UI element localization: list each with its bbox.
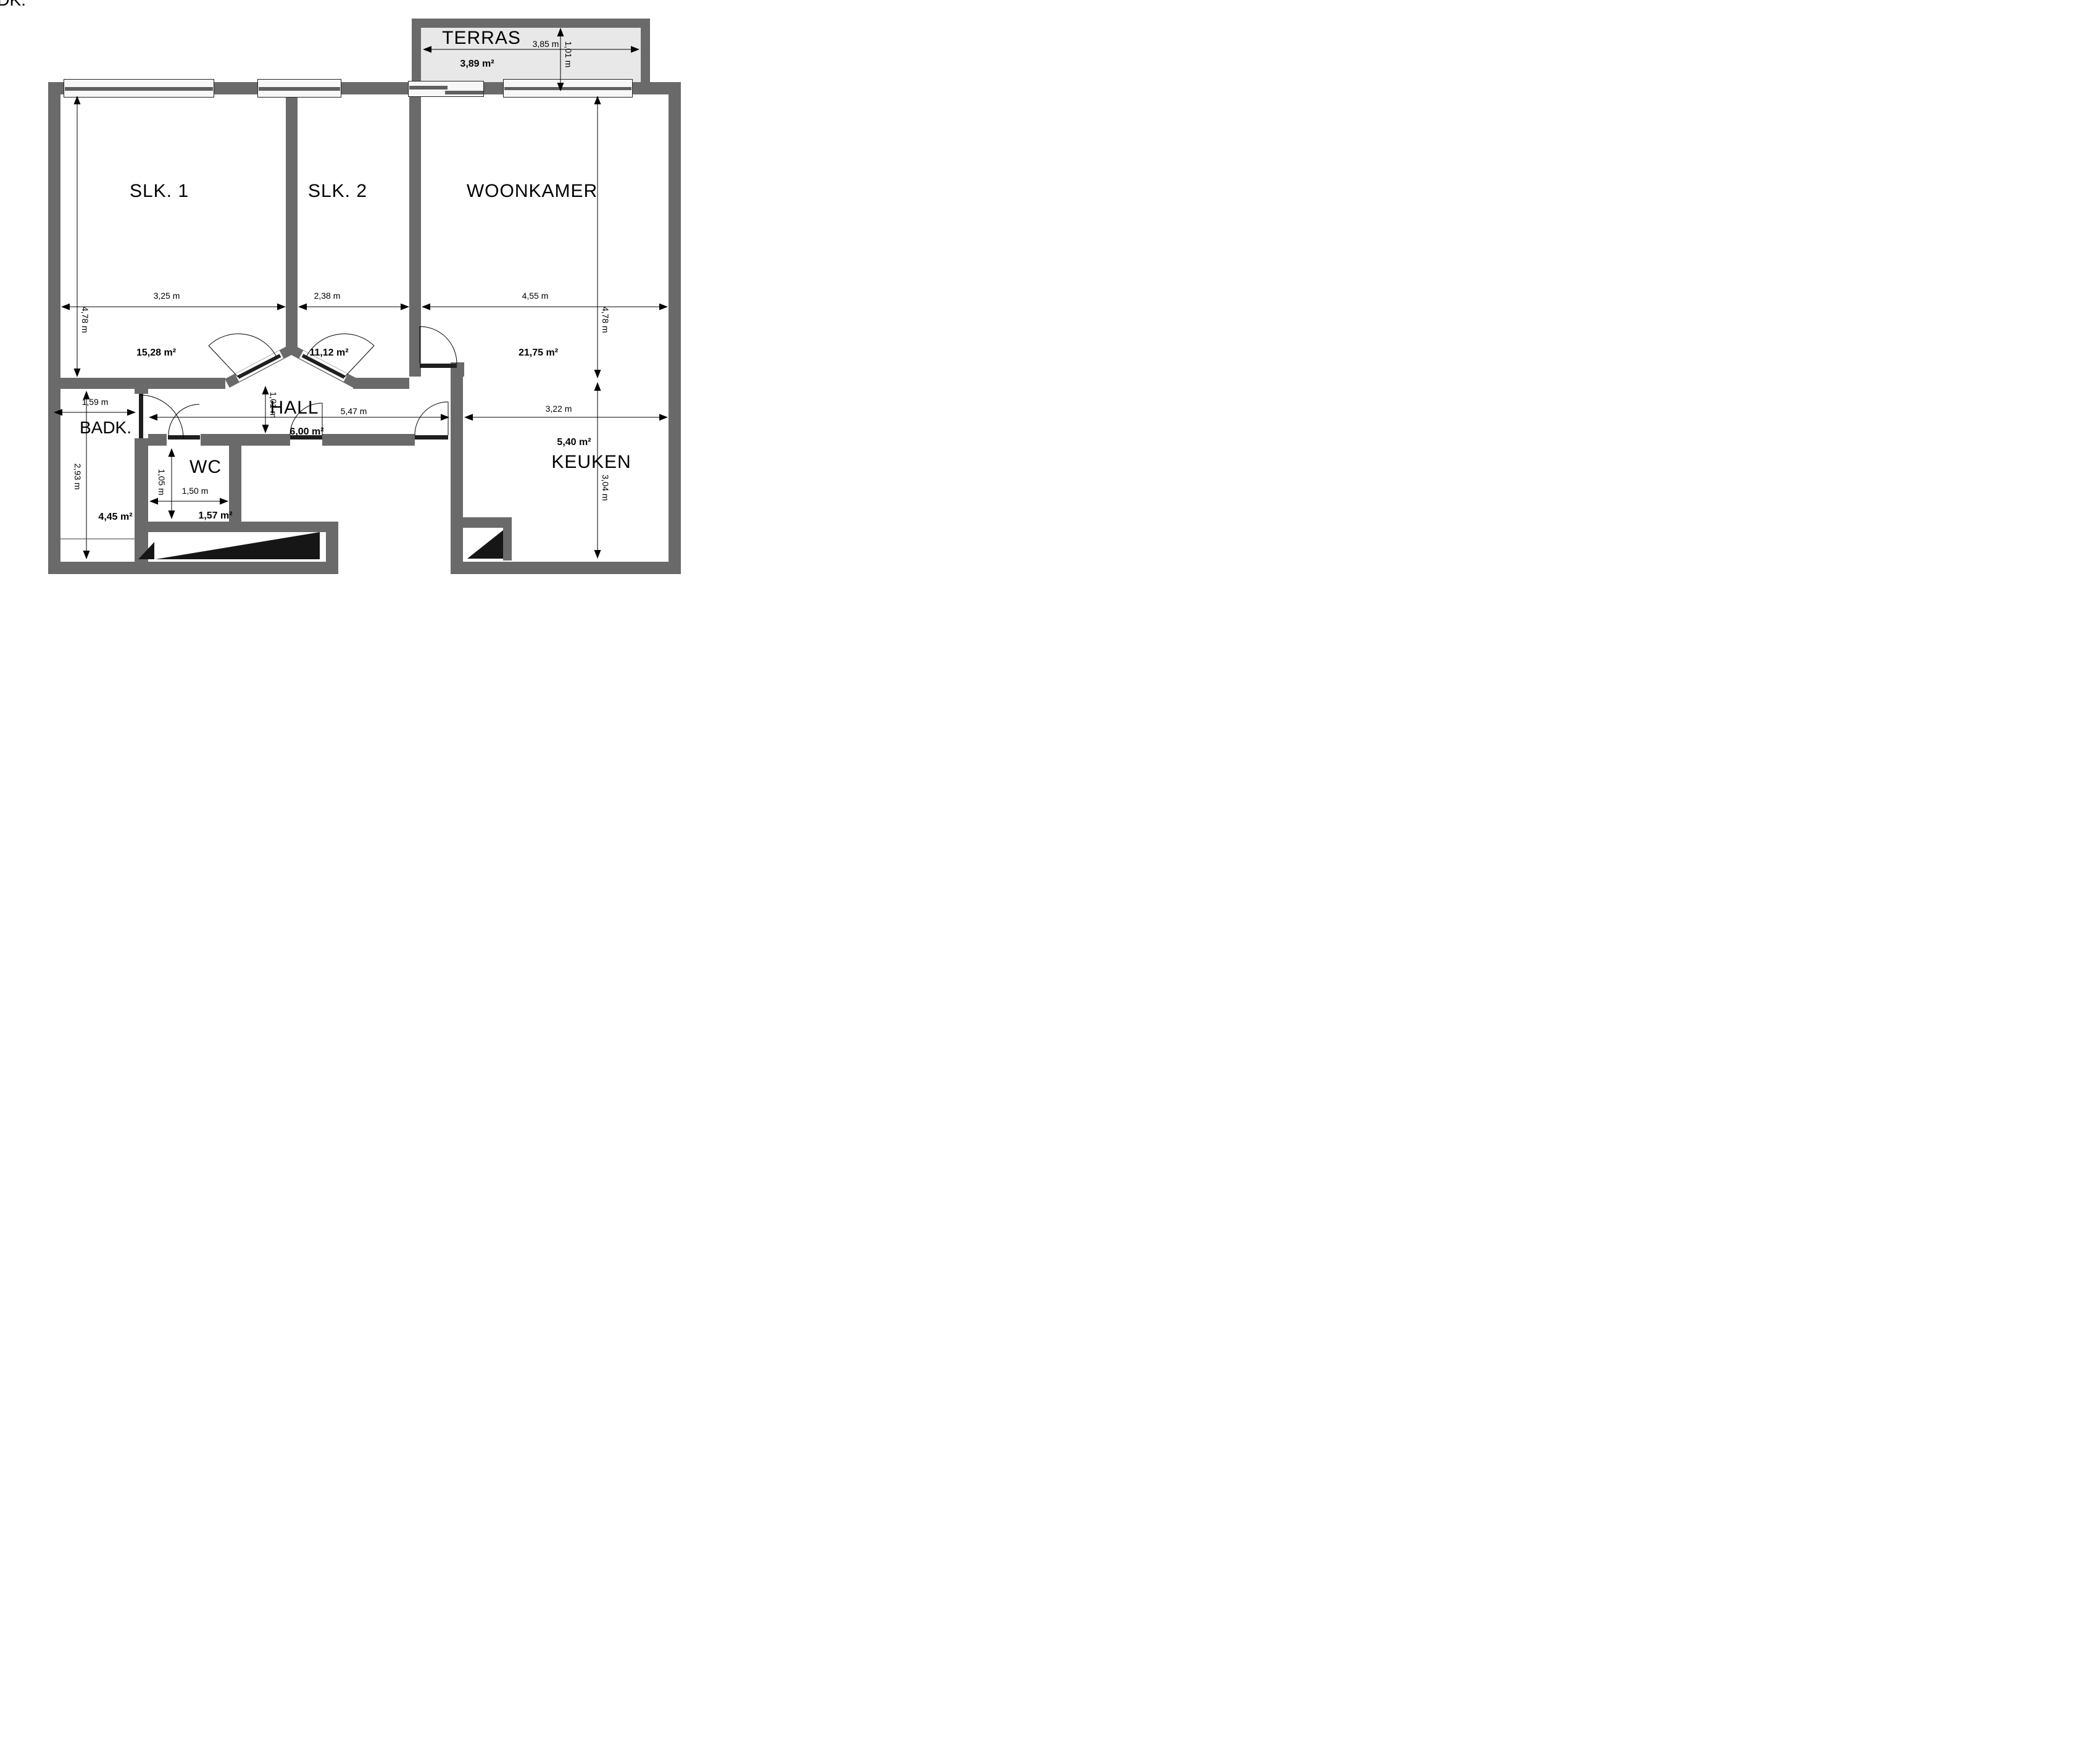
dim-keuken-width: 3,22 m <box>546 404 572 414</box>
room-label-badk: BADK. <box>80 418 131 438</box>
wall-slk2-woonkamer <box>409 94 421 365</box>
wall-wc-right <box>229 434 241 522</box>
wall-outer-left <box>48 82 60 574</box>
sliding-door-panel-right <box>445 91 483 94</box>
wall-outer-bottom-right <box>455 562 681 574</box>
wall-hall-top-left <box>60 378 225 389</box>
wall-shaft-right <box>326 522 338 574</box>
wall-hall-bottom-c <box>322 434 415 446</box>
wall-outer-bottom-left <box>48 562 338 574</box>
wall-wc-bottom <box>148 522 326 532</box>
wall-hall-bottom-b <box>201 434 290 446</box>
area-hall: 6,00 m² <box>290 427 323 438</box>
wall-keuken-left <box>451 362 463 574</box>
wall-slk1-slk2 <box>286 94 298 354</box>
area-terras: 3,89 m² <box>460 59 494 70</box>
wall-badk-divider <box>135 438 148 574</box>
dim-hall-height: 1,01 m <box>269 392 278 419</box>
window-woonkamer-frame <box>504 87 631 90</box>
dim-slk1-height: 4,78 m <box>80 307 90 333</box>
room-label-terras: TERRAS <box>442 28 521 49</box>
area-woonkamer: 21,75 m² <box>519 348 558 359</box>
area-badk: 4,45 m² <box>98 512 132 523</box>
wall-terras-right <box>641 19 650 94</box>
dim-wc-width: 1,50 m <box>182 486 209 496</box>
shaft-triangles <box>138 530 503 559</box>
wall-hall-bottom-a <box>148 434 167 446</box>
door-leaf-badk <box>139 394 143 438</box>
dim-badk-width: 1,59 m <box>82 397 109 407</box>
window-slk2-frame <box>259 87 340 91</box>
dim-keuken-height: 3,04 m <box>601 475 610 501</box>
dim-terras-width: 3,85 m <box>533 39 559 49</box>
dim-badk-height: 2,93 m <box>73 464 83 490</box>
wall-keuken-shaft-top <box>463 517 512 528</box>
area-wc: 1,57 m² <box>198 510 232 522</box>
wall-outer-right <box>669 82 681 574</box>
wall-hall-top-right <box>353 378 409 389</box>
dim-wc-height: 1,05 m <box>157 469 167 496</box>
sliding-door-panel-left <box>409 86 448 90</box>
wall-keuken-shaft-right <box>503 528 512 560</box>
wall-terras-top <box>412 19 650 28</box>
dim-hall-width: 5,47 m <box>341 406 367 416</box>
area-keuken: 5,40 m² <box>557 437 591 448</box>
room-label-slk1: SLK. 1 <box>130 181 189 202</box>
door-leaf-entry-b <box>415 435 448 440</box>
room-label-woonkamer: WOONKAMER <box>467 181 598 202</box>
window-slk1-frame <box>65 87 213 91</box>
dim-slk2-width: 2,38 m <box>314 291 341 301</box>
room-label-badk: BADK. <box>0 0 26 10</box>
floor-plan: TERRAS SLK. 1 SLK. 2 WOONKAMER HALL BADK… <box>0 0 700 583</box>
dim-woonkamer-width: 4,55 m <box>522 291 549 301</box>
door-leaf-wc <box>168 435 200 440</box>
dim-terras-depth: 1,01 m <box>564 41 573 68</box>
room-label-keuken: KEUKEN <box>551 452 631 473</box>
room-label-slk2: SLK. 2 <box>308 181 367 202</box>
wall-badk-divider-top <box>135 389 148 394</box>
room-label-wc: WC <box>190 457 222 478</box>
door-leaf-woonkamer <box>420 364 457 368</box>
dim-slk1-width: 3,25 m <box>154 291 180 301</box>
area-slk2: 11,12 m² <box>309 348 348 359</box>
dim-woonkamer-height: 4,78 m <box>601 307 610 333</box>
area-slk1: 15,28 m² <box>136 348 176 359</box>
